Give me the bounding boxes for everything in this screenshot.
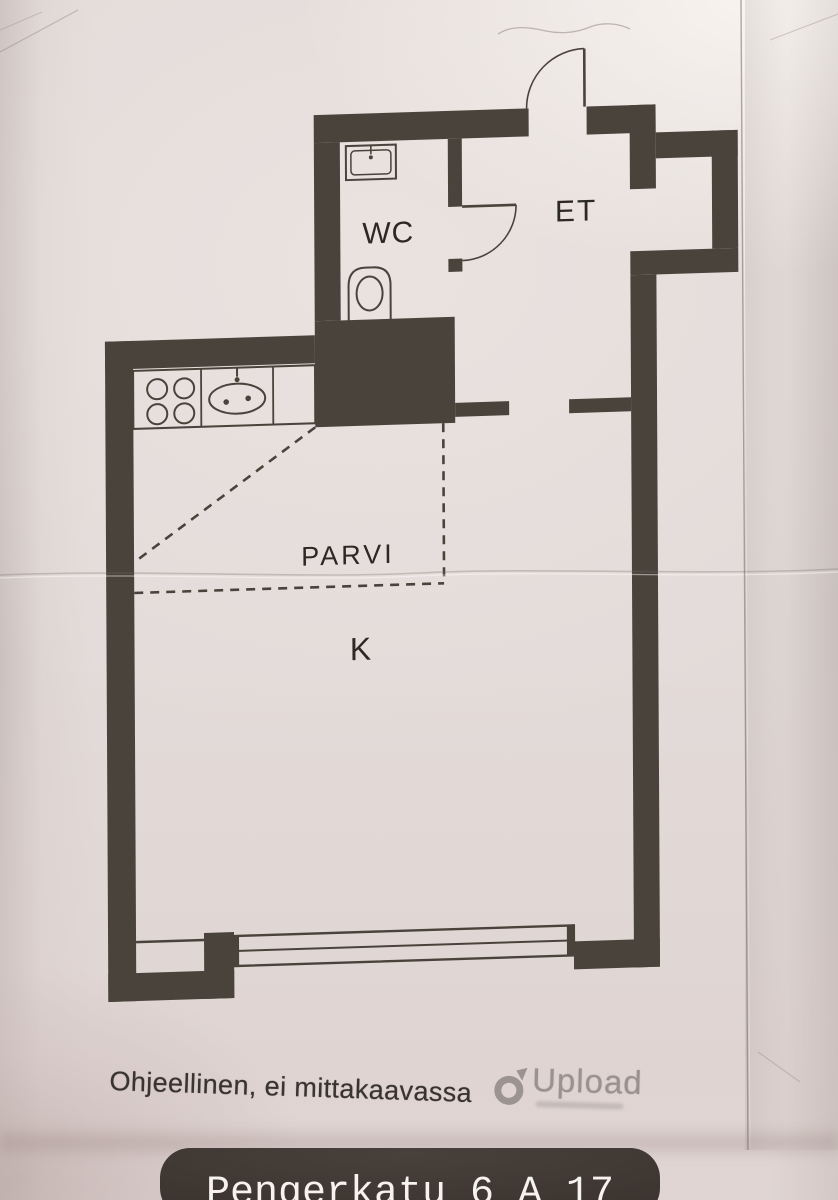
label-et: ET <box>555 194 597 228</box>
label-k: K <box>350 631 372 668</box>
wall-closet-bottom <box>630 248 738 275</box>
wall-wc-door-stub <box>448 259 462 272</box>
wc-sink-icon <box>346 145 396 181</box>
watermark-tagline <box>535 1101 623 1109</box>
doors <box>461 49 585 261</box>
wall-wc-block <box>315 317 455 427</box>
wc-door-icon <box>462 205 516 261</box>
kitchen-counter <box>133 365 315 429</box>
wall-et-k-stub-left <box>455 401 509 417</box>
wall-top-left <box>314 108 529 143</box>
label-wc: WC <box>362 216 414 251</box>
address-text: Pengerkatu 6 A 17 <box>160 1171 660 1200</box>
window-midline <box>232 940 574 951</box>
wall-right-outer <box>712 130 739 249</box>
watermark: Upload <box>493 1058 644 1114</box>
openings <box>136 925 574 969</box>
toilet-icon <box>348 267 390 322</box>
wall-wc-right <box>448 138 462 206</box>
floor-plan-drawing: WC ET PARVI K <box>0 0 838 1060</box>
window-cap-right <box>567 925 574 955</box>
wall-left <box>105 341 136 1002</box>
parvi-right-edge <box>443 423 444 583</box>
stove-icon <box>147 378 194 424</box>
parvi-bottom-edge <box>134 583 444 593</box>
window-cap-left <box>232 936 239 966</box>
walls <box>104 102 742 1002</box>
wall-et-k-stub-right <box>569 397 631 413</box>
wall-bottom-right <box>574 939 660 970</box>
kitchen-fixtures <box>133 365 315 429</box>
parvi-dashed-outline <box>133 423 444 593</box>
watermark-brand-text: Upload <box>532 1061 644 1102</box>
label-parvi: PARVI <box>301 539 395 572</box>
parvi-diagonal <box>135 427 316 561</box>
low-wall-line <box>136 940 204 942</box>
wall-bottom-step <box>204 932 234 999</box>
entrance-door-icon <box>526 49 584 109</box>
address-bar: Pengerkatu 6 A 17 <box>160 1148 660 1200</box>
floor-plan-photo: WC ET PARVI K Ohjeellinen, ei mittakaava… <box>0 0 838 1200</box>
wall-et-closet-separator <box>630 104 656 189</box>
wall-wc-left <box>314 142 341 321</box>
wall-kitchen-top <box>105 335 315 370</box>
wall-right-main <box>630 274 660 967</box>
upload-logo-icon <box>493 1064 530 1109</box>
kitchen-sink-icon <box>209 367 265 415</box>
